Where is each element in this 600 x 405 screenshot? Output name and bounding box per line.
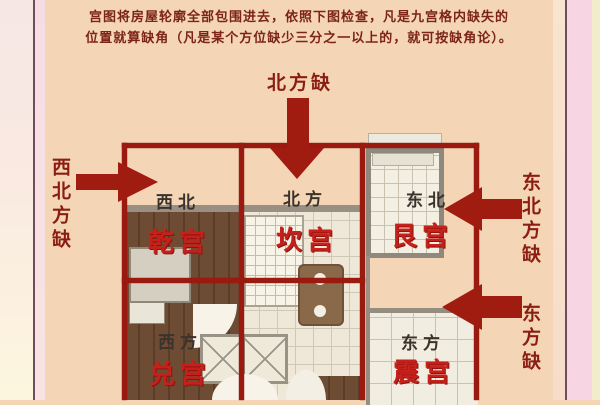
palace-qian: 乾宫 <box>119 222 239 259</box>
frame-right-outer <box>567 0 592 400</box>
frame-right-inner <box>553 0 565 400</box>
label-northwest-missing: 西北方缺 <box>46 157 72 253</box>
floorplan-corridor-wall <box>366 256 370 312</box>
palace-kan: 坎宫 <box>247 220 367 257</box>
label-northeast-missing: 东北方缺 <box>516 172 542 268</box>
frame-left-inner <box>35 0 45 400</box>
floorplan-bedroom-cabinet <box>129 302 165 324</box>
cell-direction-northwest: 西北 <box>128 188 228 213</box>
palace-zhen: 震宫 <box>364 352 484 389</box>
header-text-line2: 位置就算缺角（凡是某个方位缺少三分之一以上的，就可按缺角论）。 <box>45 27 553 46</box>
east-arrow-icon <box>442 284 482 330</box>
header-text-line1: 宫图将房屋轮廓全部包围进去，依照下图检查，凡是九宫格内缺失的 <box>45 6 553 25</box>
cell-direction-northeast: 东北 <box>378 186 478 211</box>
north-arrow-icon <box>270 148 324 179</box>
north-arrow-shaft <box>287 98 309 150</box>
label-east-missing: 东方缺 <box>516 303 542 375</box>
floorplan-kitchen-counter <box>372 153 434 166</box>
grid-horizontal-divider <box>122 278 365 283</box>
cell-direction-west: 西方 <box>130 328 230 353</box>
cell-direction-north: 北方 <box>255 185 355 210</box>
northwest-arrow-shaft <box>76 174 120 190</box>
palace-dui: 兑宫 <box>120 354 240 391</box>
label-north-missing: 北方缺 <box>230 68 370 95</box>
palace-gen: 艮宫 <box>362 216 482 253</box>
floorplan-dining-table <box>298 264 344 326</box>
frame-left-outer <box>0 0 33 400</box>
frame-right-edge <box>592 0 600 400</box>
cell-direction-east: 东方 <box>373 329 473 354</box>
